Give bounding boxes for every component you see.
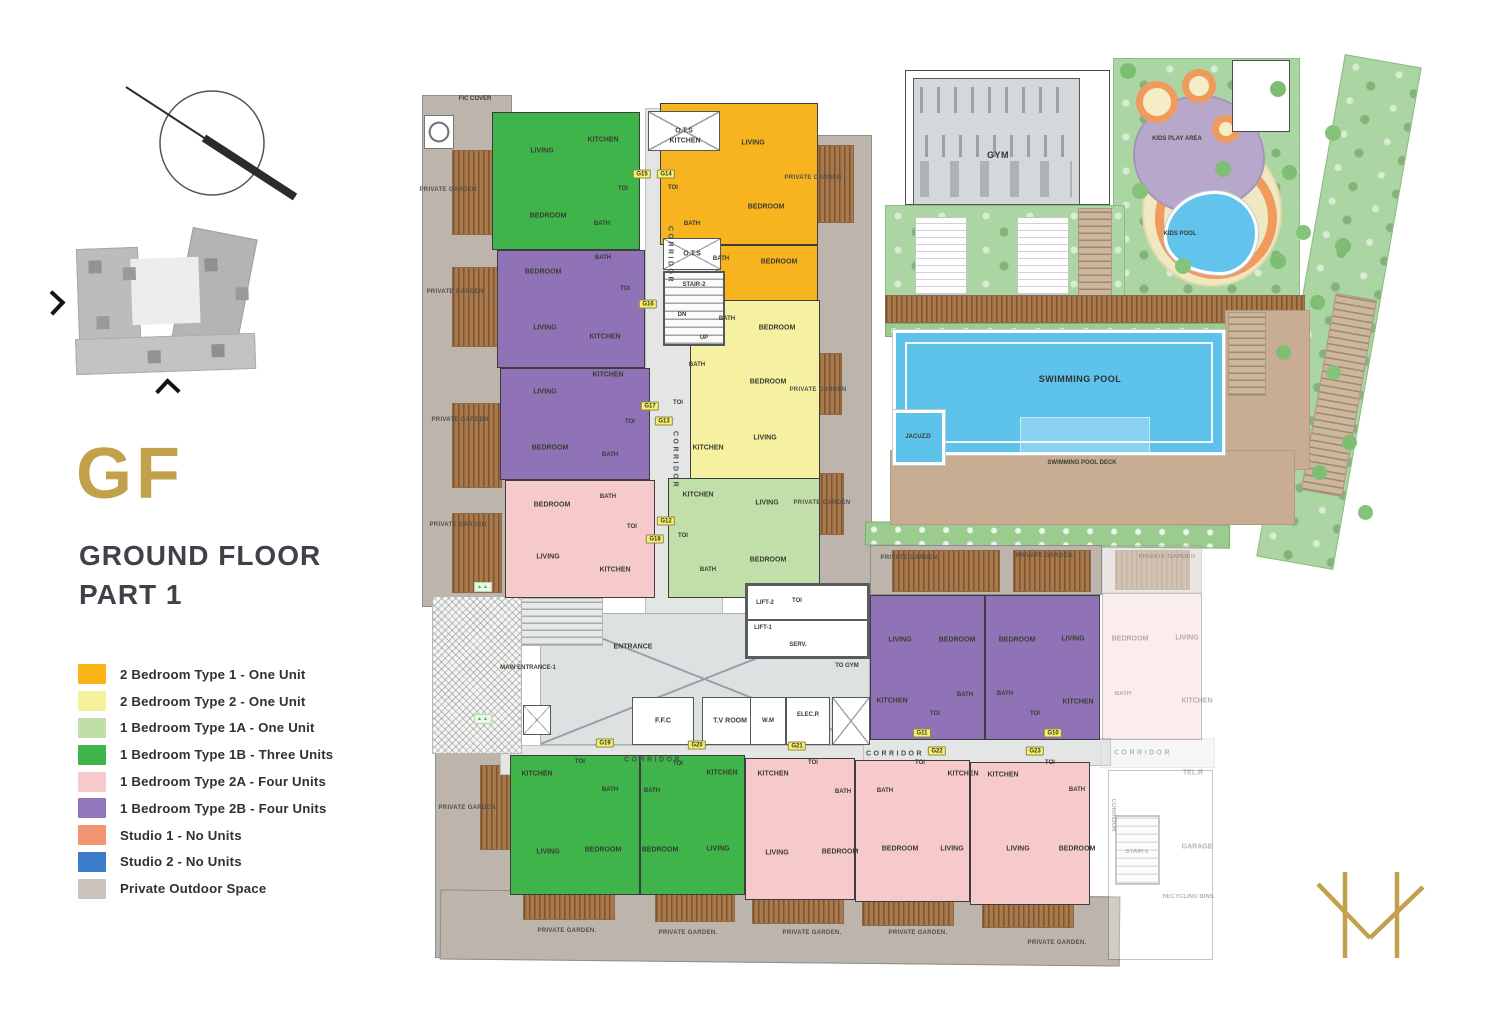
plan-label: BATH (684, 221, 700, 227)
plan-label: LIVING (1175, 635, 1198, 642)
legend-swatch (78, 852, 106, 872)
plan-label: KITCHEN (587, 137, 618, 144)
plan-label: TOI (625, 419, 635, 425)
plan-label: KITCHEN (1062, 699, 1093, 706)
plan-label: BATH (877, 788, 893, 794)
plan-label: LIVING (533, 389, 556, 396)
legend-swatch (78, 664, 106, 684)
plan-label: LIVING (753, 435, 776, 442)
unit-1bed-2b (985, 595, 1100, 740)
plan-label: ▲▲ (474, 714, 492, 724)
plan-label: PRIVATE GARDEN. (881, 555, 940, 561)
plan-label: LIVING (530, 148, 553, 155)
floor-abbreviation: GF (76, 438, 184, 510)
legend-item: 2 Bedroom Type 2 - One Unit (78, 688, 333, 715)
plan-label: BEDROOM (759, 325, 796, 332)
plan-label: TO GYM (835, 663, 859, 669)
plan-label: ELEC.R (797, 712, 819, 718)
brand-logo-icon (1300, 836, 1440, 971)
unit-badge: G17 (641, 402, 659, 411)
plan-label: BATH (997, 691, 1013, 697)
unit-badge: G21 (788, 742, 806, 751)
plan-label: ▲▲ (474, 582, 492, 592)
plan-label: TOI (618, 186, 628, 192)
unit-1bed-2b (497, 250, 645, 368)
plan-label: PRIVATE GARDEN. (1028, 940, 1087, 946)
plan-label: KIDS POOL (1163, 231, 1196, 237)
minimap-courtyard (130, 257, 200, 325)
plan-label: KITCHEN (876, 698, 907, 705)
plan-label: LIFT-2 (756, 600, 774, 606)
plan-label: KITCHEN (669, 138, 700, 145)
plan-label: LIVING (755, 500, 778, 507)
legend-item: 1 Bedroom Type 1A - One Unit (78, 715, 333, 742)
plan-label: KITCHEN (706, 770, 737, 777)
unit-1bed-2a (745, 758, 855, 900)
compass-icon (112, 75, 302, 210)
unit-badge: G11 (913, 729, 931, 738)
plan-label: BEDROOM (750, 557, 787, 564)
plan-label: FIC COVER (459, 96, 492, 102)
plan-label: BEDROOM (532, 445, 569, 452)
legend-item: Studio 1 - No Units (78, 822, 333, 849)
unit-faded (1102, 593, 1202, 740)
plan-label: BATH (713, 256, 729, 262)
legend-label: 1 Bedroom Type 1A - One Unit (120, 720, 315, 735)
plan-label: TOI (575, 759, 585, 765)
legend-item: Studio 2 - No Units (78, 849, 333, 876)
plan-label: TOI (808, 760, 818, 766)
plan-label: O.T.S (683, 251, 701, 258)
unit-1bed-2b (870, 595, 985, 740)
plan-label: T.V ROOM (713, 718, 747, 725)
legend-swatch (78, 718, 106, 738)
play-donut (1136, 81, 1178, 123)
plan-label: UP (700, 335, 708, 341)
terrace (1017, 217, 1069, 295)
plan-label: TOI (627, 524, 637, 530)
plan-label: TOI (678, 533, 688, 539)
plan-label: TOI (792, 598, 802, 604)
minimap-bottom-wing (75, 333, 256, 375)
plan-label: BEDROOM (642, 847, 679, 854)
legend-swatch (78, 772, 106, 792)
white-room (1232, 60, 1290, 132)
lift-block (745, 583, 870, 659)
plan-label: PRIVATE GARDEN. (538, 928, 597, 934)
plan-label: LIVING (765, 850, 788, 857)
unit-badge: G10 (1044, 729, 1062, 738)
plan-label: PRIVATE GARDEN (439, 805, 496, 811)
plan-label: BATH (835, 789, 851, 795)
plan-label: BEDROOM (1059, 846, 1096, 853)
shaft (832, 697, 870, 745)
play-donut (1182, 69, 1216, 103)
minimap-units (88, 260, 101, 273)
legend-item: 2 Bedroom Type 1 - One Unit (78, 661, 333, 688)
plan-label: CORRIDOR (866, 751, 924, 758)
plan-label: BEDROOM (534, 502, 571, 509)
plan-label: SWIMMING POOL DECK (1047, 460, 1116, 466)
plan-label: TOI (673, 400, 683, 406)
unit-badge: G15 (633, 170, 651, 179)
unit-badge: G16 (639, 300, 657, 309)
plan-label: BATH (1115, 691, 1131, 697)
gym-loungers (920, 161, 1072, 197)
keyplan-minimap (57, 226, 272, 388)
legend-label: 1 Bedroom Type 2B - Four Units (120, 801, 327, 816)
trees (1120, 63, 1136, 79)
plan-label: LIVING (1061, 636, 1084, 643)
plan-label: BEDROOM (761, 259, 798, 266)
plan-label: F.F.C (655, 718, 671, 725)
legend-swatch (78, 879, 106, 899)
plan-label: SERV. (789, 642, 806, 648)
plan-label: LIVING (536, 554, 559, 561)
trees (1282, 165, 1297, 180)
plan-label: KITCHEN (592, 372, 623, 379)
legend-swatch (78, 691, 106, 711)
keyplan-marker-left-icon (40, 290, 65, 315)
plan-label: BATH (600, 494, 616, 500)
plan-label: KITCHEN (1181, 698, 1212, 705)
plan-label: KITCHEN (599, 567, 630, 574)
plan-label: JACUZZI (905, 434, 930, 440)
unit-badge: G22 (928, 747, 946, 756)
plan-label: BEDROOM (525, 269, 562, 276)
plan-label: CORRIDOR (667, 226, 674, 284)
plan-label: BATH (602, 787, 618, 793)
plan-label: LIVING (741, 140, 764, 147)
plan-label: TOI (1045, 760, 1055, 766)
plan-label: PRIVATE GARDEN (430, 522, 487, 528)
plan-label: KITCHEN (987, 772, 1018, 779)
plan-label: BATH (700, 567, 716, 573)
plan-label: KITCHEN (682, 492, 713, 499)
plan-label: BATH (689, 362, 705, 368)
shaft (523, 705, 551, 735)
left-panel: GF GROUND FLOOR PART 1 2 Bedroom Type 1 … (0, 0, 420, 1010)
plan-label: STAIR-1 (1126, 849, 1149, 855)
lift-divider (745, 619, 870, 621)
legend-swatch (78, 798, 106, 818)
plan-label: BATH (1069, 787, 1085, 793)
plan-label: PRIVATE GARDEN (794, 500, 851, 506)
floor-plan: FIC COVERO.T.SO.T.SCORRIDORCORRIDORSTAIR… (420, 45, 1405, 980)
plan-label: TOI (620, 286, 630, 292)
unit-1bed-2a (970, 762, 1090, 905)
page-title: GROUND FLOOR PART 1 (79, 537, 321, 614)
plan-label: W.M (762, 718, 774, 724)
legend-swatch (78, 825, 106, 845)
plan-label: BEDROOM (750, 379, 787, 386)
plan-label: STAIR-2 (683, 282, 706, 288)
plan-label: LIFT-1 (754, 625, 772, 631)
plan-label: PRIVATE GARDEN (427, 289, 484, 295)
plan-label: PRIVATE GARDEN (790, 387, 847, 393)
plan-label: KITCHEN (947, 771, 978, 778)
plan-label: BEDROOM (530, 213, 567, 220)
plan-label: BATH (719, 316, 735, 322)
unit-badge: G23 (1026, 747, 1044, 756)
plan-label: LIVING (1006, 846, 1029, 853)
plan-label: CORRIDOR (1110, 799, 1116, 832)
gym-equipment (920, 87, 1072, 113)
plan-label: LIVING (533, 325, 556, 332)
plan-label: KITCHEN (589, 334, 620, 341)
legend-label: Private Outdoor Space (120, 881, 266, 896)
legend-item: 1 Bedroom Type 1B - Three Units (78, 741, 333, 768)
plan-label: KITCHEN (757, 771, 788, 778)
deck (452, 403, 502, 488)
unit-badge: G14 (657, 170, 675, 179)
legend-item: 1 Bedroom Type 2A - Four Units (78, 768, 333, 795)
plan-label: BATH (602, 452, 618, 458)
deck (655, 892, 735, 922)
stairs (1078, 208, 1112, 298)
pool-step (1020, 417, 1150, 453)
plan-label: BEDROOM (748, 204, 785, 211)
legend-label: 1 Bedroom Type 2A - Four Units (120, 774, 326, 789)
plan-label: MAIN ENTRANCE-1 (500, 665, 556, 671)
plan-label: BEDROOM (939, 637, 976, 644)
plan-label: O.T.S (675, 128, 693, 135)
plan-label: CORRIDOR (672, 431, 679, 489)
plan-label: PRIVATE GARDEN (1139, 554, 1196, 560)
plan-label: BATH (644, 788, 660, 794)
legend-label: 2 Bedroom Type 2 - One Unit (120, 694, 305, 709)
plan-label: TOI (1030, 711, 1040, 717)
legend-label: 1 Bedroom Type 1B - Three Units (120, 747, 333, 762)
plan-label: SWIMMING POOL (1039, 374, 1122, 384)
plan-label: PRIVATE GARDEN. (1016, 553, 1075, 559)
unit-badge: G18 (646, 535, 664, 544)
plan-label: BEDROOM (822, 849, 859, 856)
legend-label: Studio 2 - No Units (120, 854, 242, 869)
plan-label: CORRIDOR (1114, 750, 1172, 757)
plan-label: PRIVATE GARDEN (432, 417, 489, 423)
unit-badge: G20 (688, 741, 706, 750)
plan-label: TOI (668, 185, 678, 191)
room-elec (786, 697, 830, 745)
legend-swatch (78, 745, 106, 765)
plan-label: ENTRANCE (614, 644, 653, 651)
page-title-line1: GROUND FLOOR (79, 537, 321, 576)
plan-label: PRIVATE GARDEN (420, 187, 477, 193)
unit-1bed-2a (855, 760, 970, 902)
dropoff-hatch (432, 596, 522, 754)
plan-label: BEDROOM (585, 847, 622, 854)
plan-label: KITCHEN (692, 445, 723, 452)
legend-item: 1 Bedroom Type 2B - Four Units (78, 795, 333, 822)
unit-badge: G19 (596, 739, 614, 748)
unit-1bed-2a (505, 480, 655, 598)
pool-stairs (1228, 312, 1266, 396)
plan-label: BATH (957, 692, 973, 698)
plan-label: BATH (594, 221, 610, 227)
plan-label: PRIVATE GARDEN. (783, 930, 842, 936)
plan-label: KITCHEN (521, 771, 552, 778)
plan-label: GARAGE (1182, 844, 1213, 851)
keyplan-marker-bottom-icon (155, 378, 180, 403)
plan-label: BEDROOM (1112, 636, 1149, 643)
legend-label: 2 Bedroom Type 1 - One Unit (120, 667, 305, 682)
plan-label: LIVING (536, 849, 559, 856)
unit-badge: G13 (655, 417, 673, 426)
plan-label: PRIVATE GARDEN (785, 175, 842, 181)
plan-label: BEDROOM (882, 846, 919, 853)
plan-label: KIDS PLAY AREA (1152, 136, 1202, 142)
plan-label: RECYCLING BINS (1162, 894, 1213, 900)
plan-label: TOI (915, 760, 925, 766)
plan-label: TOI (673, 761, 683, 767)
terrace (915, 217, 967, 295)
deck (452, 267, 502, 347)
plan-label: TEL.R (1183, 770, 1203, 777)
plan-label: BATH (595, 255, 611, 261)
legend-item: Private Outdoor Space (78, 875, 333, 902)
plan-label: LIVING (706, 846, 729, 853)
plan-label: DN (678, 312, 687, 318)
legend: 2 Bedroom Type 1 - One Unit2 Bedroom Typ… (78, 661, 333, 902)
unit-badge: G12 (657, 517, 675, 526)
page-title-line2: PART 1 (79, 576, 321, 615)
plan-label: PRIVATE GARDEN. (659, 930, 718, 936)
legend-label: Studio 1 - No Units (120, 828, 242, 843)
plan-label: TOI (930, 711, 940, 717)
fic-cover-box (424, 115, 454, 149)
plan-label: PRIVATE GARDEN. (889, 930, 948, 936)
unit-1bed-1b (492, 112, 640, 250)
plan-label: LIVING (888, 637, 911, 644)
plan-label: LIVING (940, 846, 963, 853)
plan-label: BEDROOM (999, 637, 1036, 644)
plan-label: GYM (987, 150, 1009, 160)
